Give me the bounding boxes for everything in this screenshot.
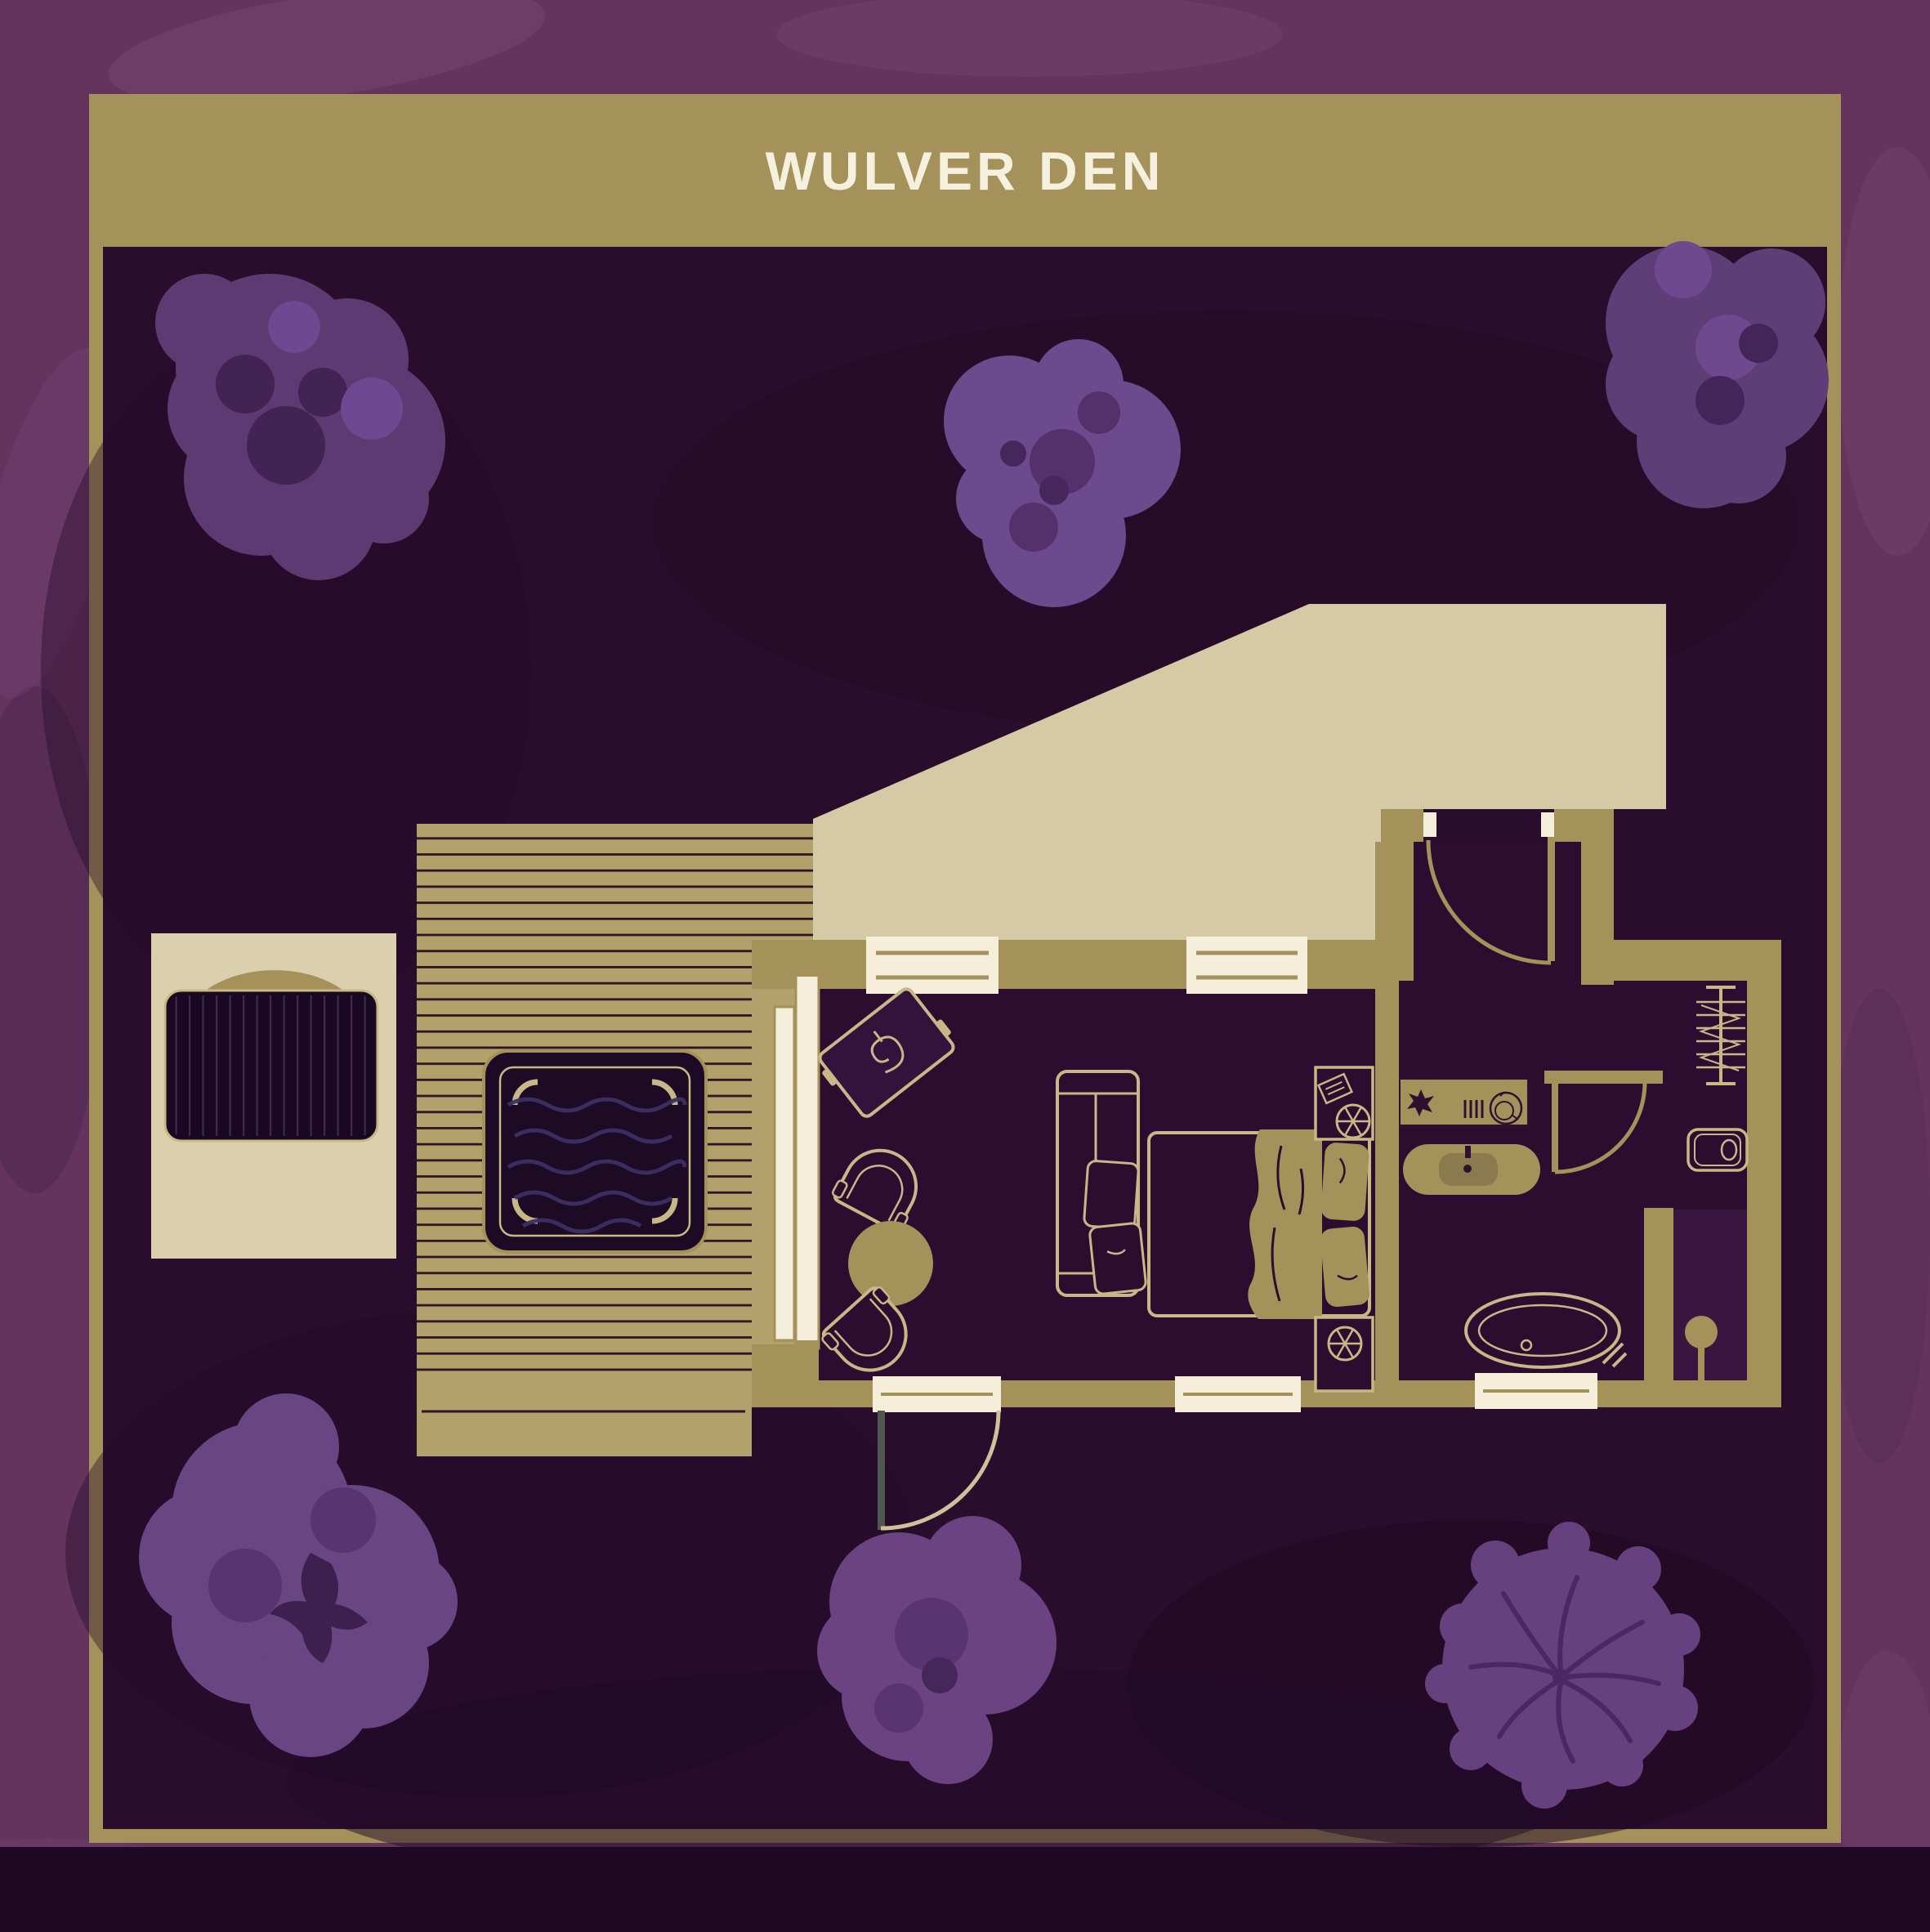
toilet-icon <box>1688 1129 1747 1170</box>
nightstand-bottom <box>1316 1317 1373 1391</box>
window-bottom-bedroom <box>1175 1376 1301 1412</box>
floor-plan-poster: WULVER DEN <box>0 0 1930 1932</box>
double-bed <box>1149 1129 1370 1319</box>
pillow <box>1320 1142 1369 1222</box>
page-title: WULVER DEN <box>766 141 1165 201</box>
wood-store-hut <box>151 933 396 1259</box>
side-table <box>848 1221 933 1306</box>
sofa <box>1057 1071 1146 1295</box>
hot-tub <box>484 1051 706 1252</box>
window-top-2 <box>1186 937 1307 994</box>
window-top-1 <box>866 937 999 994</box>
reading-lamp-icon <box>1337 1105 1369 1138</box>
pillow <box>1320 1226 1370 1308</box>
poster-canvas: WULVER DEN <box>0 0 1930 1932</box>
bottom-shadow-band <box>0 1847 1930 1932</box>
reading-lamp-icon <box>1329 1327 1361 1360</box>
vanity-counter <box>1400 1079 1528 1125</box>
terrace-door-threshold <box>873 1376 1001 1412</box>
sofa-cushion <box>1083 1161 1138 1229</box>
duvet <box>1248 1129 1322 1319</box>
shower <box>1673 1210 1747 1380</box>
sink-icon <box>1403 1144 1540 1195</box>
sliding-glass-door <box>775 968 819 1348</box>
nightstand-top <box>1316 1067 1373 1139</box>
sofa-cushion <box>1089 1223 1146 1295</box>
window-bottom-bathroom <box>1475 1373 1597 1409</box>
